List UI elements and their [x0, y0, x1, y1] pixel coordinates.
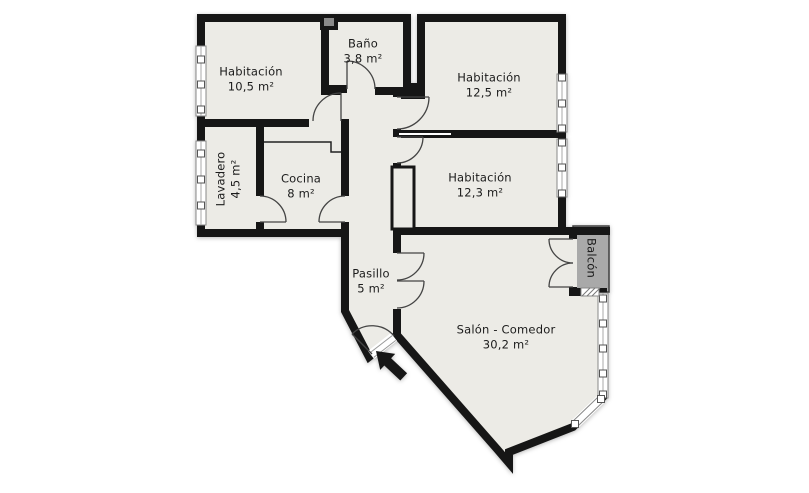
- room-name: Salón - Comedor: [457, 322, 556, 337]
- entrance-arrow-icon: [376, 351, 407, 381]
- room-area: 8 m²: [281, 186, 321, 201]
- window-salon-right: [598, 293, 608, 398]
- room-label-cocina: Cocina 8 m²: [281, 171, 321, 200]
- closet: [392, 167, 414, 229]
- room-name: Balcón: [584, 238, 599, 278]
- room-label-pasillo: Pasillo 5 m²: [352, 266, 389, 295]
- room-label-balcon: Balcón: [584, 238, 599, 278]
- room-name: Lavadero: [213, 152, 228, 207]
- window-lavadero: [196, 141, 206, 225]
- room-pasillo: [345, 91, 397, 357]
- room-label-lavadero: Lavadero 4,5 m²: [213, 152, 242, 207]
- room-label-bano: Baño 3,8 m²: [344, 36, 383, 65]
- room-area: 3,8 m²: [344, 51, 383, 66]
- room-name: Habitación: [457, 70, 521, 85]
- room-name: Baño: [344, 36, 383, 51]
- room-name: Habitación: [219, 64, 283, 79]
- room-area: 12,3 m²: [448, 185, 512, 200]
- floor-plan-svg: [0, 0, 809, 493]
- room-label-salon-comedor: Salón - Comedor 30,2 m²: [457, 322, 556, 351]
- room-area: 10,5 m²: [219, 79, 283, 94]
- room-label-habitacion-1: Habitación 10,5 m²: [219, 64, 283, 93]
- room-area: 4,5 m²: [228, 152, 243, 207]
- window-habitacion-1: [196, 46, 206, 116]
- room-area: 5 m²: [352, 281, 389, 296]
- room-area: 12,5 m²: [457, 85, 521, 100]
- room-label-habitacion-2: Habitación 12,5 m²: [457, 70, 521, 99]
- room-label-habitacion-3: Habitación 12,3 m²: [448, 170, 512, 199]
- window-habitacion-2: [557, 74, 567, 132]
- floor-plan: Habitación 10,5 m² Baño 3,8 m² Habitació…: [0, 0, 809, 493]
- room-area: 30,2 m²: [457, 337, 556, 352]
- room-name: Pasillo: [352, 266, 389, 281]
- window-under-balcony: [581, 288, 600, 296]
- room-name: Habitación: [448, 170, 512, 185]
- room-name: Cocina: [281, 171, 321, 186]
- window-habitacion-3: [557, 139, 567, 197]
